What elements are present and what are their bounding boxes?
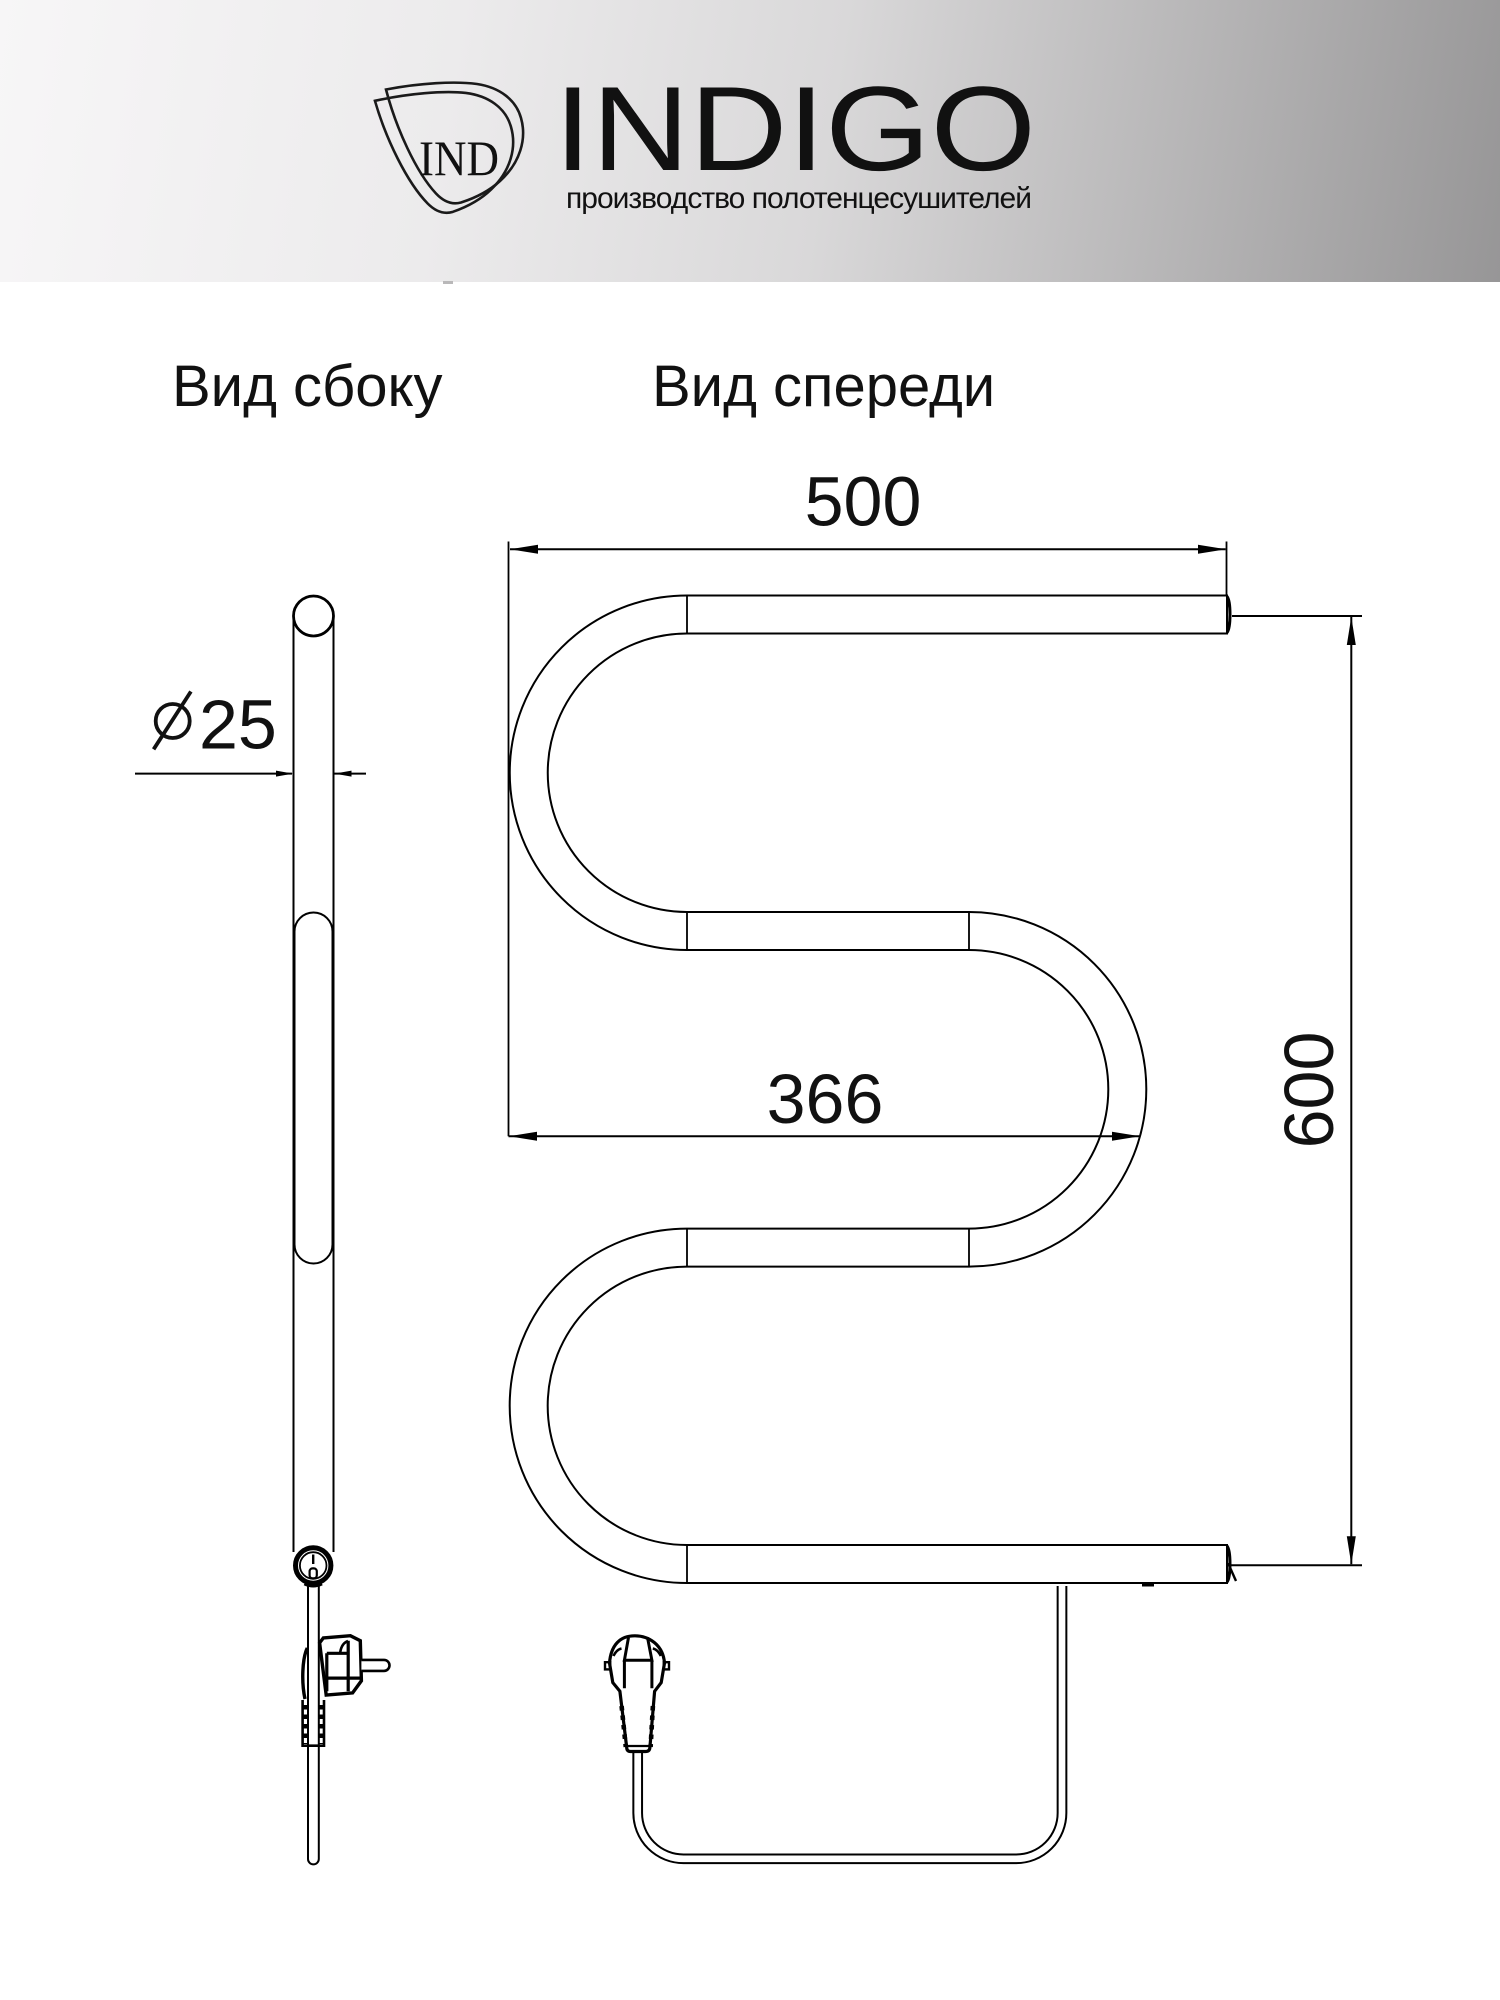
svg-text:Вид спереди: Вид спереди	[652, 354, 995, 419]
svg-text:600: 600	[1270, 1032, 1348, 1149]
svg-text:366: 366	[767, 1060, 884, 1138]
svg-text:Вид сбоку: Вид сбоку	[172, 354, 443, 419]
svg-text:500: 500	[805, 462, 922, 540]
svg-text:25: 25	[199, 685, 277, 763]
